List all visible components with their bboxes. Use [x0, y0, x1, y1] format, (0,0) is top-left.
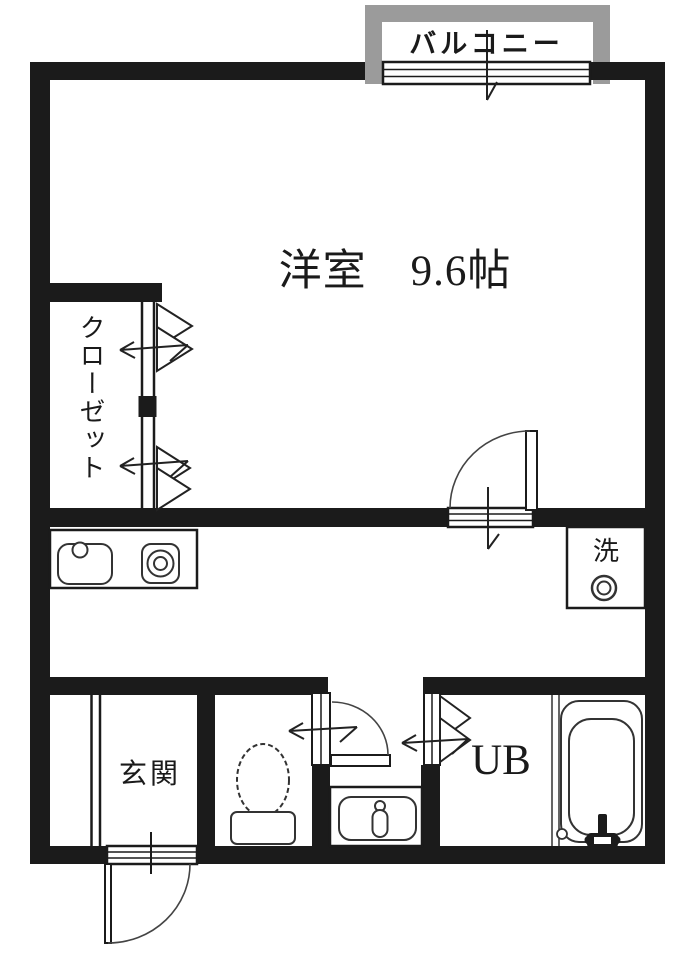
door-swing-arc — [108, 864, 190, 943]
entrance-step-line — [92, 695, 101, 846]
balcony-label: バルコニー — [383, 22, 590, 61]
washbasin-icon — [330, 787, 422, 846]
bath-partition — [552, 695, 559, 846]
drain-icon — [557, 829, 567, 839]
unit-bath-label: UB — [455, 736, 547, 785]
toilet-door — [289, 693, 390, 766]
entrance-door — [105, 832, 197, 943]
entrance-label: 玄関 — [103, 752, 197, 792]
closet-bifold-door — [120, 301, 192, 510]
closet-label: クローゼット — [73, 314, 110, 519]
toilet-icon — [231, 744, 295, 844]
door-swing-arc — [450, 431, 530, 508]
main-room-door — [448, 431, 537, 549]
bathtub-icon — [557, 701, 642, 848]
kitchen-counter — [50, 530, 197, 588]
main-room-label: 洋室 9.6帖 — [230, 236, 560, 298]
water-tap-icon — [592, 576, 616, 600]
laundry-label: 洗 — [567, 531, 645, 568]
sink-icon — [58, 543, 112, 585]
stove-burner-icon — [142, 544, 179, 583]
floor-plan: バルコニー 洋室 9.6帖 クローゼット 洗 玄関 UB — [0, 0, 700, 959]
